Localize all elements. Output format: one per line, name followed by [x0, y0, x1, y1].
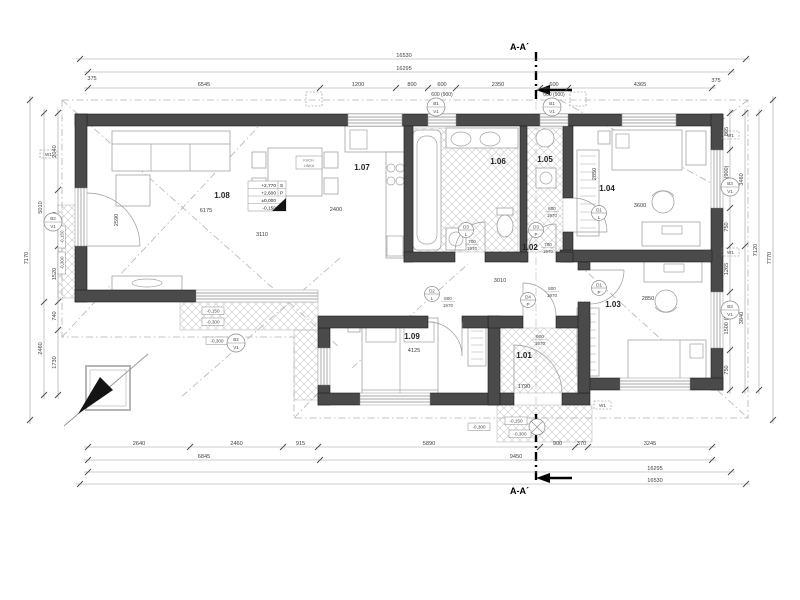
window-103-east [711, 292, 723, 348]
dim-label: D1 [596, 207, 602, 212]
window-kitchen [348, 114, 402, 126]
dim-label: 750 [724, 222, 730, 231]
dim-label: W1 [599, 403, 606, 408]
wall-bath-bottom-1 [404, 252, 455, 262]
dim-label: 375 [711, 78, 720, 84]
dim-label: 1730 [52, 356, 58, 368]
room-label-1-07: 1.07 [354, 163, 370, 172]
dim-label: -0,150 [60, 230, 65, 243]
elevation-label: -0,150 [505, 417, 527, 425]
wall-tech-104-a [563, 126, 573, 198]
terrace-door-left [75, 188, 87, 246]
window-104 [622, 114, 676, 126]
dim-label: 16530 [396, 53, 412, 59]
dim-label: 800 [548, 206, 556, 211]
window-bath [428, 114, 456, 126]
dim-label: 700 [544, 242, 552, 247]
elevation-label: -0,300 [202, 318, 224, 326]
dim-label: 600 (900) [543, 92, 565, 98]
dim-label: 370 [577, 441, 586, 447]
dim-label: B2 [233, 337, 239, 342]
elevation-label: -0,150 [58, 226, 66, 248]
dim-label: -0,300 [210, 339, 223, 344]
floor-plan-drawing: A-A´ A-A´ +2,770 S +2,600 P ±0,000 -0,15… [0, 0, 800, 600]
washbasins [446, 128, 518, 148]
room-label-1-09: 1.09 [404, 332, 420, 341]
dim-label: 6545 [198, 82, 210, 88]
dim-label: 9450 [510, 454, 522, 460]
dim-label: 2400 [330, 207, 342, 213]
dim-label: V1 [549, 109, 555, 114]
room-label-1-08: 1.08 [214, 191, 230, 200]
window-109-south [360, 393, 430, 405]
tech-appliance [536, 168, 556, 188]
armchair [116, 175, 150, 206]
wall-entry-top-1 [488, 316, 523, 328]
dim-label: 2850 [642, 296, 654, 302]
dim-label: L [431, 296, 434, 301]
window-104-east [711, 150, 723, 208]
porch-drain [529, 419, 545, 435]
dim-label: 1970 [535, 341, 546, 346]
dim-label: V1 [727, 312, 733, 317]
elevation-label: -0,300 [58, 252, 66, 274]
section-label-bottom: A-A´ [510, 486, 529, 496]
dim-label: B1 [433, 101, 439, 106]
dim-label: 1790 [518, 384, 530, 390]
dim-label: 900 [553, 441, 562, 447]
dim-label: 3840 [739, 312, 745, 324]
dim-label: B3 [727, 304, 733, 309]
dim-label: D1 [596, 282, 602, 287]
wall-rwing-bottom-2 [690, 378, 723, 390]
dim-label: -0,300 [472, 425, 485, 430]
dim-label: 2350 [492, 82, 504, 88]
floor-plan-page: A-A´ A-A´ +2,770 S +2,600 P ±0,000 -0,15… [0, 0, 800, 600]
level-r1-tag: S [280, 183, 283, 189]
toilet [497, 208, 513, 237]
dim-label: 700 [468, 239, 476, 244]
dim-label: 16295 [396, 66, 412, 72]
dim-label: 7770 [767, 252, 773, 264]
level-r1: +2,770 [261, 183, 276, 189]
dim-label: W1 [727, 250, 734, 255]
dim-label: 5010 [38, 201, 44, 213]
dim-label: 800 [444, 296, 452, 301]
dim-label: 1970 [547, 293, 558, 298]
dim-label: 900 [536, 334, 544, 339]
dim-label: D2 [429, 288, 435, 293]
dim-label: 2460 [230, 441, 242, 447]
dim-label: B2 [50, 216, 56, 221]
room-label-1-04: 1.04 [599, 184, 615, 193]
window-living-south [196, 290, 318, 302]
dim-label: 4125 [408, 348, 420, 354]
wall-living-bottom [75, 290, 196, 302]
dim-label: 600 [549, 82, 558, 88]
dim-label: 4365 [634, 82, 646, 88]
dim-label: -0,300 [206, 320, 219, 325]
dim-label: 3460 [739, 173, 745, 185]
wall-left-upper [75, 114, 87, 188]
dim-label: -0,150 [206, 309, 219, 314]
elevation-label: -0,300 [509, 430, 531, 438]
dim-label: 3010 [494, 278, 506, 284]
bathtub [413, 130, 441, 250]
terrace-bottom-left-v [294, 330, 318, 400]
dim-label: 800 [548, 286, 556, 291]
wall-bath-tech [520, 126, 527, 262]
level-marker: +2,770 S +2,600 P ±0,000 -0,150 [248, 181, 286, 212]
room-label-1-02: 1.02 [522, 243, 538, 252]
dim-label: 6175 [200, 208, 212, 214]
dim-label: V1 [727, 189, 733, 194]
dim-label: 1970 [547, 213, 558, 218]
dim-label: V1 [433, 109, 439, 114]
wall-hall-103-a [578, 262, 590, 270]
room-label-1-05: 1.05 [537, 155, 553, 164]
wall-wing-bottom-2 [430, 393, 514, 405]
dim-label: P [597, 290, 600, 295]
dim-label: -0,300 [60, 256, 65, 269]
wall-right-2 [711, 208, 723, 292]
dim-label: 2460 [38, 342, 44, 354]
wall-wing-left-1 [318, 328, 330, 348]
dim-label: 2590 [114, 214, 120, 226]
dim-label: 375 [87, 76, 96, 82]
dim-label: D4 [525, 294, 531, 299]
bed-104 [598, 130, 706, 170]
roof-marker-1 [306, 92, 322, 106]
dim-label: 800 [407, 82, 416, 88]
desk-103 [644, 258, 702, 312]
elevation-label: -0,300 [206, 337, 228, 345]
dim-label: 600 [437, 82, 446, 88]
dim-label: D3 [463, 224, 469, 229]
tv-bench [112, 276, 182, 291]
room-label-1-03: 1.03 [605, 300, 621, 309]
elevation-label: -0,300 [468, 423, 490, 431]
wall-right-1 [711, 114, 723, 150]
dim-label: B1 [549, 101, 555, 106]
kitchen-note-line1: KUCH. [303, 159, 314, 163]
chair-104 [652, 191, 674, 213]
dim-label: 750 [724, 365, 730, 374]
elevation-label: -0,150 [202, 307, 224, 315]
double-bed-109 [348, 318, 438, 398]
dim-label: P [526, 302, 529, 307]
dim-label: 3600 [634, 203, 646, 209]
dim-label: 16530 [647, 478, 663, 484]
dim-label: V1 [50, 224, 56, 229]
wall-bath-bottom-2 [485, 252, 528, 262]
dim-label: -0,150 [509, 419, 522, 424]
dim-label: 7120 [753, 244, 759, 256]
terrace-bottom-left-h [180, 302, 318, 330]
dim-label: 2850 [592, 168, 598, 180]
wall-bath-bottom-3 [556, 252, 573, 262]
bed-103 [628, 340, 706, 382]
wall-hall-103-b [578, 302, 590, 393]
level-r3: ±0,000 [261, 198, 276, 204]
wall-109-top-2 [462, 316, 488, 328]
wall-wing-bottom-1 [318, 393, 360, 405]
dim-label: 2640 [133, 441, 145, 447]
dim-label: W1 [45, 152, 52, 157]
dim-label: L [465, 232, 468, 237]
wall-109-top-1 [318, 316, 428, 328]
dim-label: 1265 [724, 263, 730, 275]
dim-label: P [534, 232, 537, 237]
dim-label: 7170 [24, 252, 30, 264]
room-label-1-01: 1.01 [516, 351, 532, 360]
dim-label: B3 [727, 181, 733, 186]
wall-104-103 [560, 250, 712, 262]
kitchen-note: KUCH. LINKA [296, 156, 322, 169]
dim-label: 600 (900) [431, 92, 453, 98]
level-r2: +2,600 [261, 191, 276, 197]
dim-label: 1200 [352, 82, 364, 88]
dim-label: V1 [233, 345, 239, 350]
window-103-south [620, 378, 690, 390]
level-r2-tag: P [280, 191, 283, 197]
dim-label: 5890 [423, 441, 435, 447]
dim-label: 1970 [443, 303, 454, 308]
dim-label: -0,300 [513, 432, 526, 437]
sofa [112, 131, 230, 171]
desk-104 [642, 191, 700, 246]
chair-103 [655, 290, 677, 312]
dim-label: 740 [52, 311, 58, 320]
dim-label: 915 [296, 441, 305, 447]
wall-wing-bottom-3 [562, 393, 590, 405]
dim-label: 3245 [644, 441, 656, 447]
kitchen-counter [345, 126, 404, 258]
wardrobe-104 [577, 150, 599, 236]
dim-label: D3 [533, 224, 539, 229]
dim-label: 3110 [256, 232, 268, 238]
water-heater [536, 129, 554, 147]
dim-label: 1520 [52, 268, 58, 280]
section-label-top: A-A´ [510, 42, 529, 52]
wall-kitchen-bath [404, 126, 413, 262]
north-arrow [64, 354, 148, 426]
kitchen-note-line2: LINKA [304, 164, 315, 168]
window-109-west [318, 348, 330, 385]
wall-109-101 [488, 316, 500, 405]
dim-label: W1 [727, 133, 734, 138]
dim-label: 6845 [198, 454, 210, 460]
dim-label: 1970 [467, 246, 478, 251]
dim-label: 1970 [543, 249, 554, 254]
dim-label: L [598, 215, 601, 220]
room-label-1-06: 1.06 [490, 157, 506, 166]
dim-label: 16295 [647, 466, 663, 472]
roof-marker-2 [570, 92, 586, 106]
